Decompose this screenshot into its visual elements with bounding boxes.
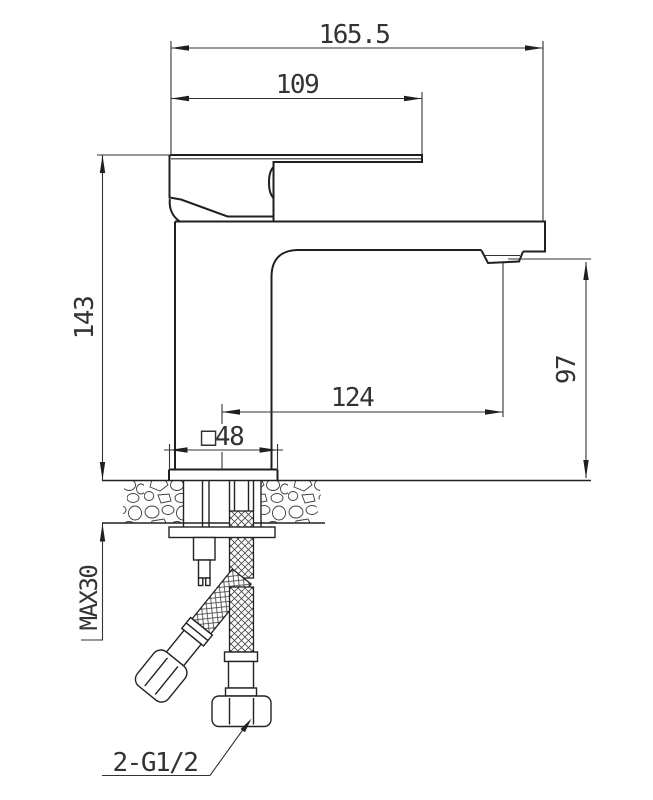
handle-fillet-arc <box>170 199 180 221</box>
dim-handle-length: 109 <box>171 70 422 154</box>
mounting-hardware <box>169 481 275 586</box>
dim-overall-length: 165.5 <box>171 20 543 221</box>
straight-hose-braid <box>230 587 254 652</box>
base-flange <box>169 470 278 481</box>
faucet-dimension-drawing: 165.5 109 143 MAX30 124 □48 97 <box>0 0 653 800</box>
dim-overall-length-label: 165.5 <box>319 20 390 50</box>
dim-height-label: 143 <box>70 297 100 339</box>
countertop-section <box>102 481 591 524</box>
threaded-stud-tip <box>199 560 211 578</box>
hose-upper-braid <box>230 511 254 578</box>
hose-hex-nut <box>212 696 271 727</box>
handle-lever <box>170 155 423 222</box>
dim-spout-height: 97 <box>508 259 591 478</box>
aerator-outlet <box>482 251 524 264</box>
dim-spout-reach-label: 124 <box>331 383 374 413</box>
dim-max-thickness-label: MAX30 <box>75 566 103 631</box>
hose-collar-lower <box>226 688 257 696</box>
dim-handle-length-label: 109 <box>276 70 318 100</box>
label-thread-spec: 2-G1/2 <box>102 719 252 779</box>
dim-max-thickness: MAX30 <box>75 524 105 641</box>
dim-spout-height-label: 97 <box>552 356 582 384</box>
threaded-stud <box>194 538 216 561</box>
stud-prong-right <box>206 578 210 586</box>
dim-spout-reach: 124 <box>222 263 503 469</box>
countertop-hatch-right <box>261 481 321 523</box>
stud-prong-left <box>199 578 203 586</box>
dim-base-square: □48 <box>164 422 283 469</box>
dim-height: 143 <box>70 155 169 480</box>
dim-base-square-label: □48 <box>201 422 243 452</box>
mounting-washer <box>169 527 275 538</box>
thread-spec-label: 2-G1/2 <box>113 748 198 778</box>
technical-drawing-page: 165.5 109 143 MAX30 124 □48 97 <box>0 0 653 800</box>
hose-collar-upper <box>225 652 258 662</box>
countertop-hatch-left <box>121 481 184 523</box>
hose-tube <box>229 662 254 689</box>
